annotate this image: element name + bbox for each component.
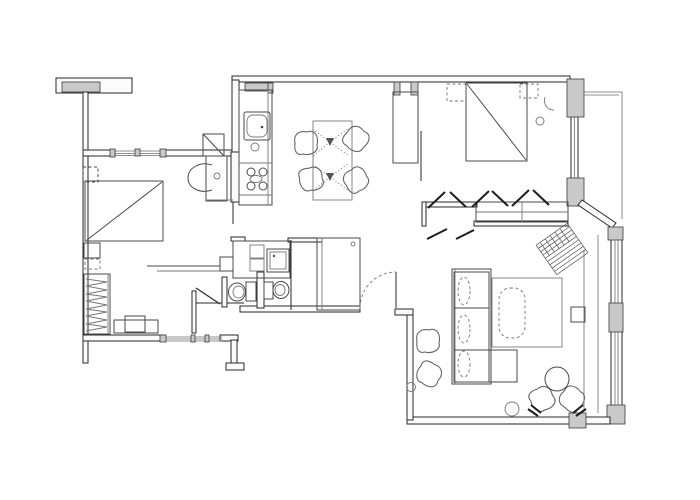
toilet-1	[229, 282, 257, 301]
north-wall-jamb-b	[411, 82, 418, 95]
sofa	[452, 269, 517, 384]
vanity-counter	[206, 156, 227, 201]
rug	[492, 278, 562, 347]
toilet-2	[264, 282, 289, 300]
room-hallway	[317, 238, 396, 310]
hatched-mat	[536, 223, 588, 274]
south-wall-a	[83, 335, 164, 341]
swivel-chair-2	[556, 383, 588, 416]
swivel-chair-1	[527, 384, 558, 416]
hall-cabinet	[317, 238, 360, 310]
pillow-2	[520, 84, 538, 98]
plant-1	[417, 329, 440, 352]
north-wall	[232, 76, 570, 82]
wc1-door-jamb	[192, 291, 196, 333]
tall-wardrobe	[393, 92, 418, 163]
window-bedroom-left-bottom	[160, 335, 222, 342]
closet-dresser	[476, 202, 568, 222]
living-west-stub	[395, 309, 413, 315]
pouf	[505, 402, 519, 416]
wc1-east-stub	[222, 277, 227, 307]
window-mullion-block	[609, 303, 623, 332]
bed-left-diagonal	[87, 182, 162, 240]
washing-machine	[267, 249, 289, 272]
window-living-upper	[611, 240, 622, 303]
pillar-ne	[567, 79, 584, 117]
floor-plan-page	[0, 0, 700, 500]
entry-door	[360, 272, 396, 308]
room-closet	[427, 190, 568, 239]
bed-right-diagonal	[467, 84, 526, 160]
tv-unit	[571, 307, 585, 322]
window-bedroom-left-top	[110, 149, 166, 157]
room-living	[407, 223, 599, 416]
floor-plan-drawing	[0, 0, 700, 500]
basin-drain	[214, 173, 220, 179]
dining-chair-1	[295, 131, 318, 154]
wc1-door-leaf	[196, 288, 220, 304]
hall-west-foot	[226, 363, 244, 370]
desk-chair	[125, 316, 145, 332]
dining-chair-3	[298, 166, 325, 193]
wall-shelf	[147, 257, 233, 271]
washbasin	[188, 164, 212, 191]
room-kitchen	[239, 90, 272, 205]
cooktop	[239, 163, 272, 195]
bathroom-east-wall	[231, 152, 239, 202]
closet-west-stub	[422, 202, 426, 226]
pillow-1	[447, 84, 466, 101]
desk	[114, 320, 158, 333]
wc-divider-wall	[257, 272, 264, 308]
dining-chair-2	[340, 123, 372, 155]
window-bedroom-right-east	[571, 117, 578, 178]
sink-drain-circle	[251, 143, 259, 151]
parapet-block	[62, 82, 100, 92]
room-bedroom-left	[83, 167, 233, 334]
room-dining	[295, 121, 373, 200]
north-wall-jamb-a	[394, 82, 400, 95]
plant-2	[413, 358, 445, 389]
block-window-top	[608, 227, 623, 240]
walls-exterior	[56, 76, 625, 428]
room-bathroom	[188, 134, 233, 201]
window-living-lower	[611, 332, 622, 405]
sofa-chaise	[489, 350, 517, 382]
round-table	[545, 367, 569, 391]
diagonal-wall	[578, 200, 616, 228]
kitchen-sink	[244, 112, 270, 140]
wall-bit-kitchen-hall	[231, 237, 245, 241]
hall-west-stub	[231, 340, 237, 365]
bedroom-left-top-wall-b	[161, 150, 237, 156]
kitchen-west-wall	[232, 80, 239, 152]
dining-chair-4	[340, 164, 371, 196]
living-west-wall	[407, 310, 413, 420]
terrace-outline	[584, 92, 622, 219]
clothes-hanger-marks	[427, 190, 549, 239]
side-pouf-small	[536, 117, 544, 125]
coffee-table	[499, 288, 525, 338]
